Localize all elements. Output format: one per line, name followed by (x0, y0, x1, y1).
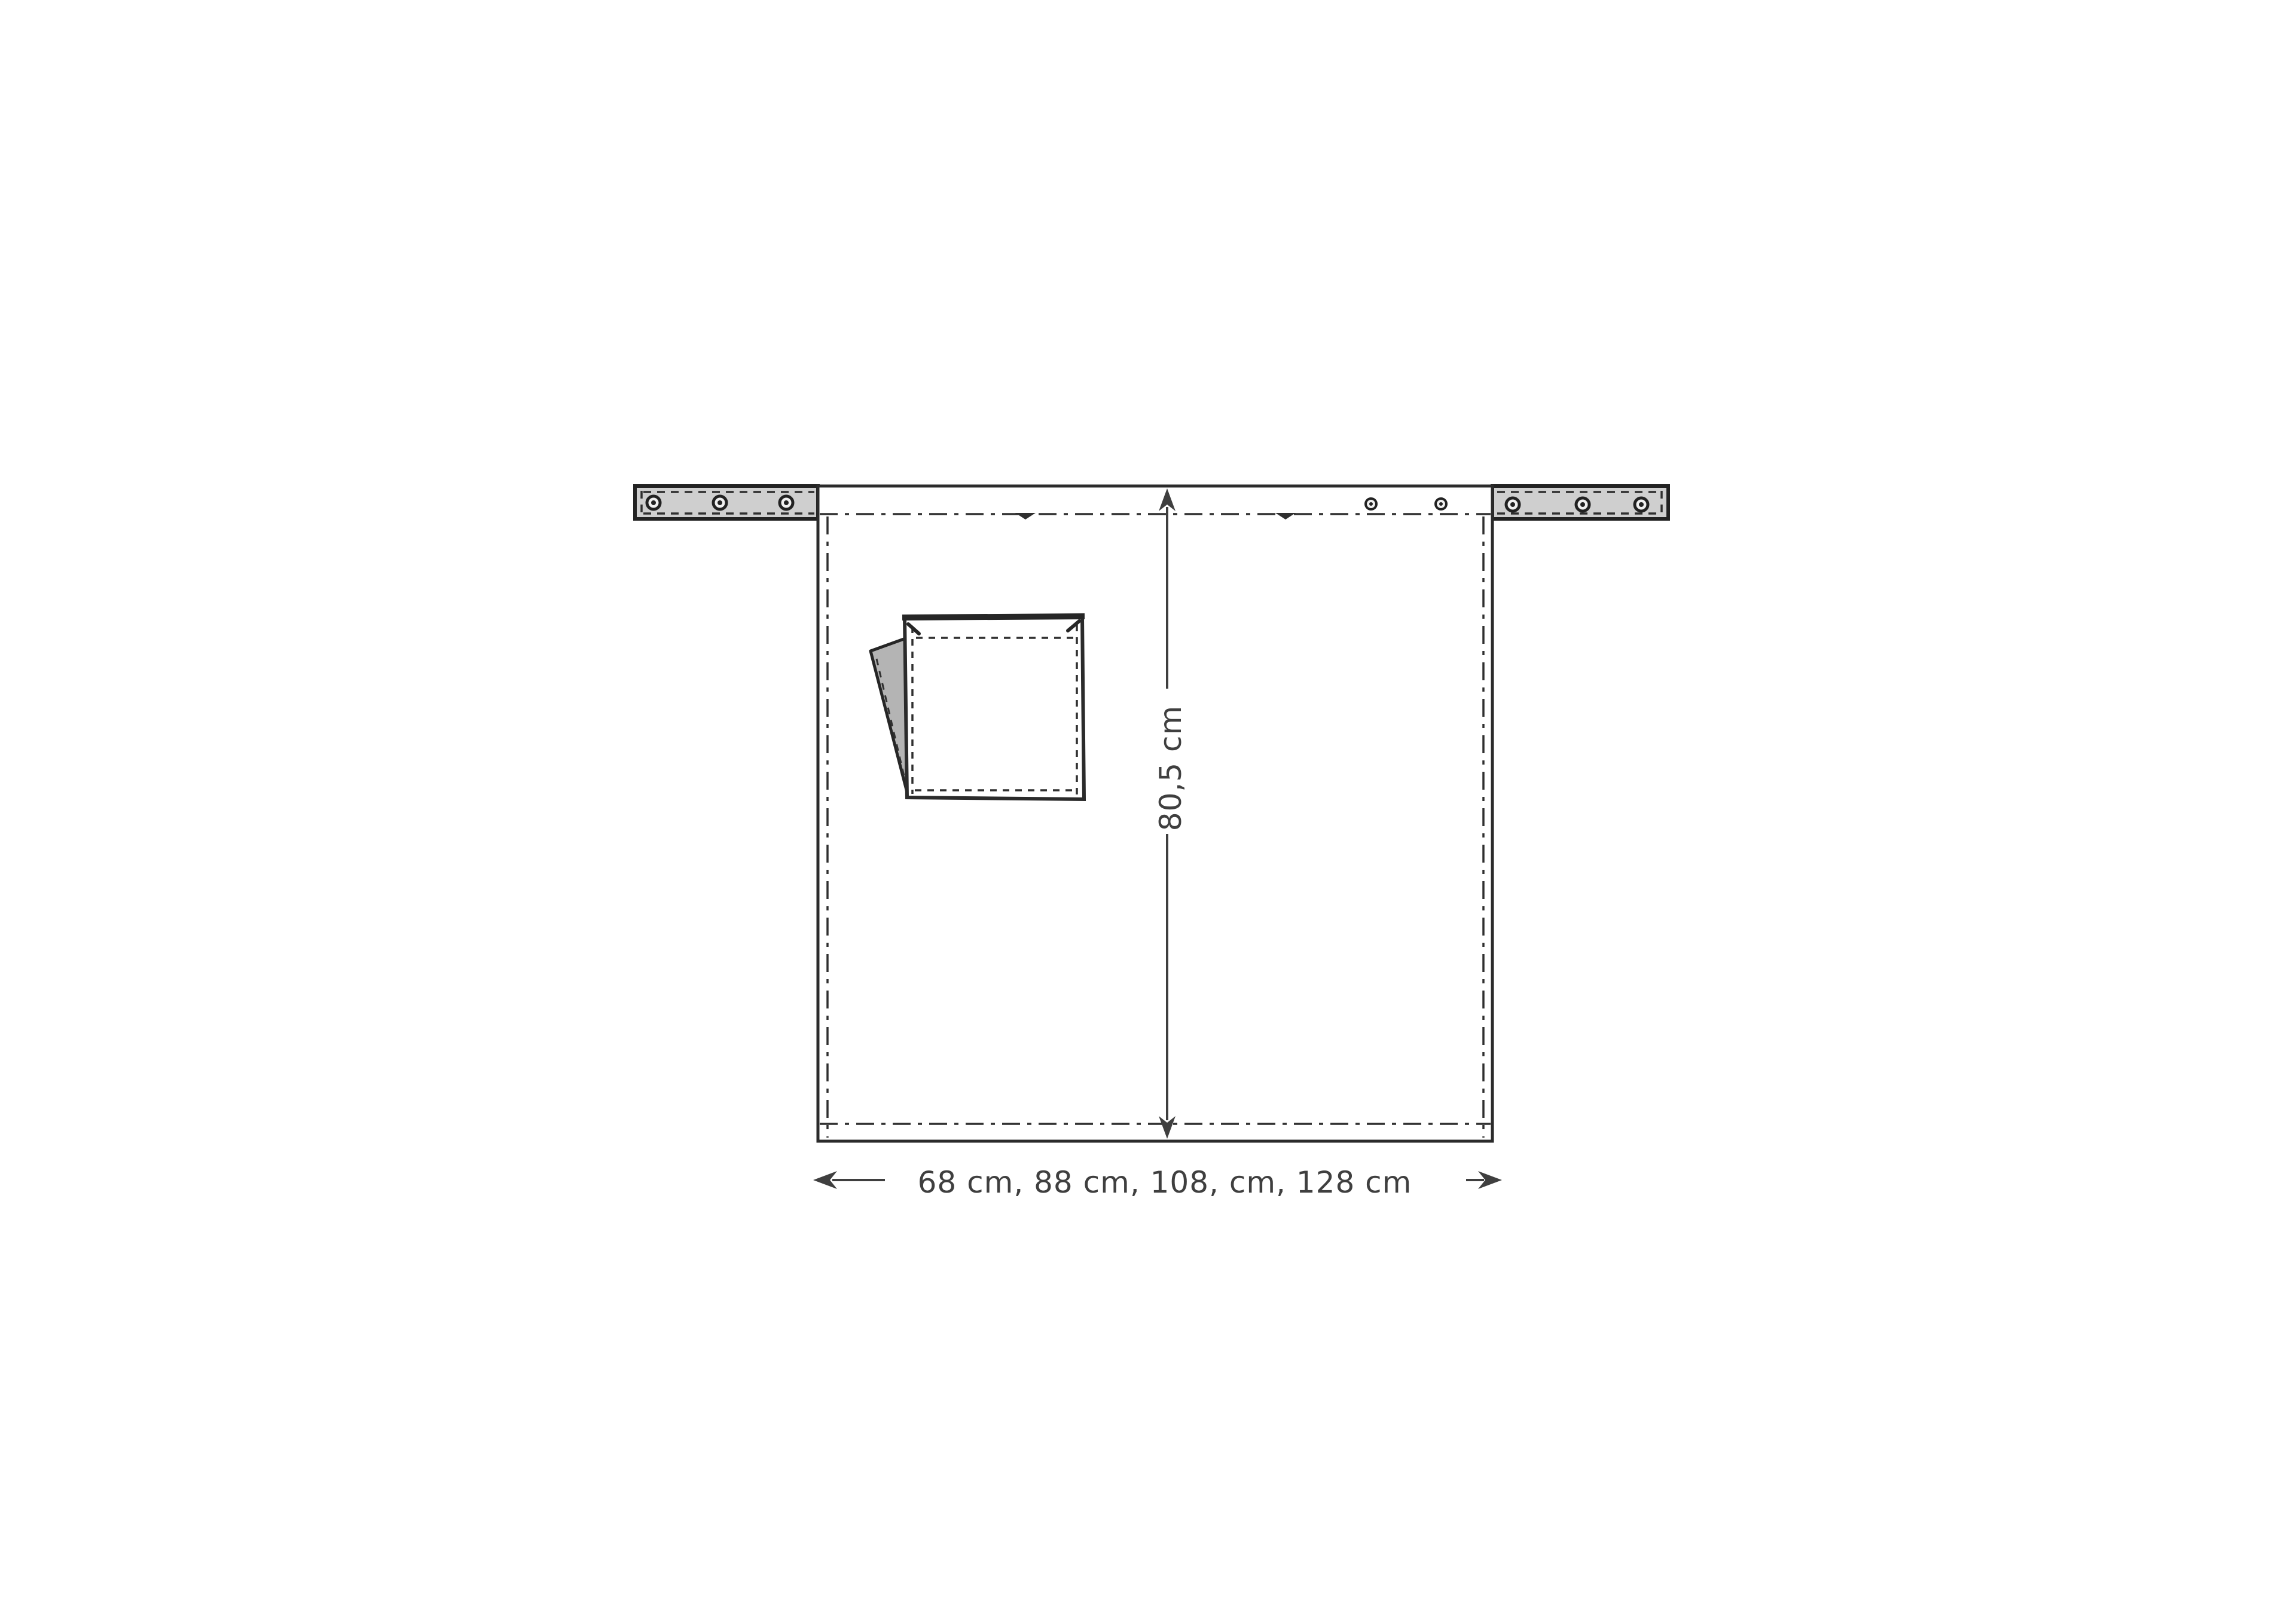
body-grommet-1 (1366, 499, 1376, 509)
right-tie-grommet-1 (1506, 498, 1519, 511)
body-grommet-2 (1436, 499, 1446, 509)
left-tie-grommet-2 (713, 496, 726, 509)
pocket-outline (905, 616, 1084, 799)
pocket-top-hem-edge (902, 616, 1085, 618)
right-tie-grommet-3 (1635, 498, 1648, 511)
right-tie (1492, 486, 1668, 519)
pocket (871, 616, 1085, 799)
height-dimension-label: 80,5 cm (1153, 705, 1188, 831)
left-tie-grommet-3 (780, 496, 793, 509)
apron-technical-drawing: 80,5 cm 68 cm, 88 cm, 108, cm, 128 cm (0, 0, 2296, 1623)
width-dimension: 68 cm, 88 cm, 108, cm, 128 cm (813, 1165, 1502, 1200)
left-tie-grommet-1 (647, 496, 660, 509)
right-tie-grommet-2 (1576, 498, 1589, 511)
width-dimension-label: 68 cm, 88 cm, 108, cm, 128 cm (918, 1165, 1412, 1200)
left-tie (635, 486, 818, 519)
